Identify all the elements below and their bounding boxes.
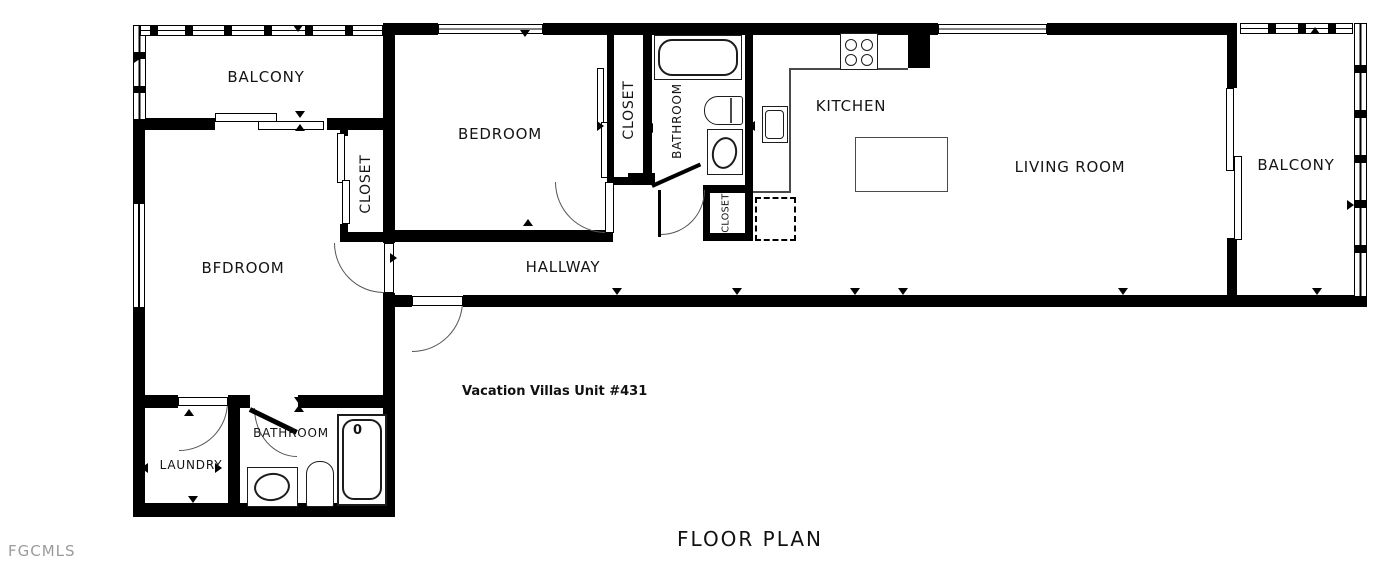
- bathtub-drain-mark: 0: [353, 423, 362, 438]
- window-livingroom: [938, 24, 1047, 34]
- window-mullion: [1268, 23, 1276, 34]
- door-leaf-laundry: [178, 397, 228, 406]
- room-label-laundry: LAUNDRY: [160, 458, 223, 472]
- room-label-bathroom-top: BATHROOM: [670, 83, 684, 159]
- stove-burner: [845, 39, 857, 51]
- room-label-balcony-left: BALCONY: [227, 68, 304, 86]
- stove-burner: [845, 54, 857, 66]
- dimension-arrow: [390, 253, 397, 263]
- stove-burner: [861, 39, 873, 51]
- door-leaf-passage: [658, 190, 661, 237]
- window-mullion: [185, 25, 193, 36]
- wall-bottom-main-b: [463, 295, 1367, 307]
- sliding-door-balcony-left-panel: [258, 121, 324, 130]
- room-label-bedroom-left: BFDROOM: [201, 259, 284, 277]
- window-mullion: [264, 25, 272, 36]
- dimension-arrow: [1118, 288, 1128, 295]
- dimension-arrow: [523, 219, 533, 226]
- dimension-arrow: [520, 30, 530, 37]
- wall-bedroomleft-bottom-a: [133, 395, 178, 408]
- dimension-arrow: [732, 288, 742, 295]
- watermark: FGCMLS: [8, 542, 76, 560]
- wall-kitchen-stub: [908, 23, 930, 68]
- kitchen-sink-basin: [765, 110, 784, 139]
- window-mullion: [150, 25, 158, 36]
- dimension-arrow: [294, 397, 304, 404]
- sliding-door-balcony-right-panel: [1226, 88, 1234, 171]
- wall-bedroomleft-bottom-c: [298, 395, 395, 408]
- door-arc-bedroom-left: [334, 243, 384, 293]
- stove: [840, 33, 878, 70]
- window-mullion: [1354, 110, 1367, 118]
- wall-top-a: [383, 23, 438, 35]
- sink-bottom: [306, 461, 334, 507]
- dimension-arrow: [188, 496, 198, 503]
- window-mullion: [1354, 245, 1367, 253]
- door-arc-passage: [661, 190, 705, 235]
- wall-top-d: [1047, 23, 1237, 35]
- door-leaf-bathroom-top: [651, 163, 701, 188]
- room-label-living-room: LIVING ROOM: [1015, 158, 1126, 176]
- wall-left-lower: [133, 308, 145, 517]
- wall-bedroomleft-bottom-b: [228, 395, 250, 408]
- dimension-arrow: [1312, 288, 1322, 295]
- window-mullion: [1328, 23, 1336, 34]
- wall-bedroomtop-bottom: [390, 230, 613, 242]
- unit-label: Vacation Villas Unit #431: [462, 384, 647, 399]
- wall-bottom-main-a: [383, 295, 412, 307]
- room-label-closet-mid: CLOSET: [621, 80, 637, 139]
- room-label-bedroom-top: BEDROOM: [458, 125, 542, 143]
- dimension-arrow: [295, 124, 305, 131]
- toilet-top-tank-line: [730, 98, 732, 123]
- toilet-top: [704, 96, 743, 125]
- room-label-balcony-right: BALCONY: [1257, 156, 1334, 174]
- door-arc-entry: [412, 301, 463, 352]
- sliding-door-balcony-right-panel: [1234, 156, 1242, 240]
- room-label-closet-small: CLOSET: [721, 193, 732, 232]
- wall-closetsmall-bottom: [703, 233, 753, 241]
- floor-plan-canvas: 0 BALCONY BEDROOM CLOSET CLOSET BATHROOM…: [0, 0, 1380, 569]
- refrigerator-dashed: [755, 197, 796, 241]
- window-mullion: [224, 25, 232, 36]
- kitchen-counter-bottom-edge: [753, 191, 791, 193]
- wall-closetsmall-top: [703, 185, 753, 193]
- wall-left-upper: [133, 118, 145, 203]
- sliding-door-closet-left-panel: [337, 133, 345, 183]
- door-leaf-entry: [412, 296, 463, 306]
- sliding-door-closet-mid-panel: [597, 68, 604, 126]
- wall-bedroomtop-right: [607, 23, 614, 182]
- kitchen-island: [855, 137, 948, 192]
- stove-burner: [861, 54, 873, 66]
- dimension-arrow: [850, 288, 860, 295]
- wall-bathtop-right: [745, 23, 753, 241]
- window-mullion: [305, 25, 313, 36]
- bathtub-top-inner: [658, 39, 738, 76]
- dimension-arrow: [295, 111, 305, 118]
- dimension-arrow: [134, 53, 141, 63]
- window-mullion: [345, 25, 353, 36]
- door-leaf-bedroom-top: [605, 182, 614, 233]
- wall-laundry-divider: [228, 408, 240, 503]
- window-balcony-left: [133, 25, 146, 120]
- dimension-arrow: [748, 121, 755, 131]
- wall-closetmid-right: [643, 30, 652, 185]
- dimension-arrow: [293, 25, 303, 32]
- room-label-closet-left: CLOSET: [358, 154, 374, 213]
- dimension-arrow: [1310, 27, 1320, 34]
- window-mullion: [1354, 155, 1367, 163]
- dimension-arrow: [184, 409, 194, 416]
- dimension-arrow: [141, 463, 148, 473]
- dimension-arrow: [597, 121, 604, 131]
- dimension-arrow: [294, 405, 304, 412]
- window-mullion: [1354, 200, 1367, 208]
- room-label-kitchen: KITCHEN: [816, 97, 887, 115]
- window-balcony-right-top: [1240, 23, 1353, 34]
- door-arc-bedroom-top: [555, 182, 606, 233]
- room-label-hallway: HALLWAY: [526, 258, 601, 276]
- sliding-door-closet-left-panel: [342, 180, 350, 224]
- wall-living-right-lower: [1227, 238, 1237, 298]
- dimension-arrow: [1347, 200, 1354, 210]
- dimension-arrow: [898, 288, 908, 295]
- dimension-arrow: [138, 366, 145, 376]
- dimension-arrow: [612, 288, 622, 295]
- wall-top-c: [930, 23, 938, 35]
- door-leaf-bedroom-left: [384, 243, 394, 293]
- room-label-bathroom-bottom: BATHROOM: [253, 426, 329, 440]
- wall-living-right-upper: [1227, 23, 1237, 88]
- window-mullion: [133, 86, 146, 93]
- kitchen-counter-left-edge: [789, 68, 791, 192]
- dimension-arrow: [646, 123, 653, 133]
- page-title: FLOOR PLAN: [677, 527, 823, 551]
- window-mullion: [1298, 23, 1306, 34]
- window-bedroomleft: [133, 203, 145, 308]
- window-mullion: [1354, 65, 1367, 73]
- dimension-arrow: [386, 53, 393, 63]
